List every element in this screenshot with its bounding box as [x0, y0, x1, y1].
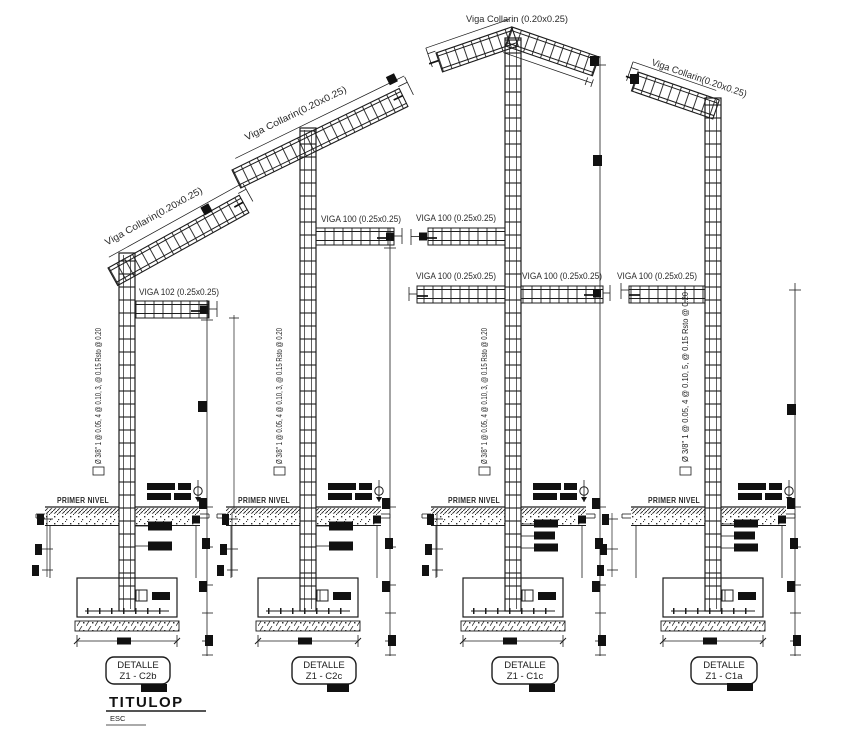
beam-label: VIGA 100 (0.25x0.25): [522, 271, 602, 281]
beam-label: VIGA 100 (0.25x0.25): [416, 271, 496, 281]
stirrup-note-text: Ø 3/8" 1 @ 0.05, 4 @ 0.10, 3, @ 0.15 Rst…: [479, 328, 489, 464]
detail-title: DETALLE: [504, 660, 546, 671]
anchor-mark: [630, 74, 639, 84]
collar-beam-label: Viga Collarin (0.20x0.25): [466, 14, 568, 25]
detail-code: Z1 - C1a: [706, 671, 744, 682]
anchor-mark: [590, 56, 599, 66]
detail-title-box: DETALLE Z1 - C2b: [106, 657, 170, 692]
stirrup-note-text: Ø 3/8" 1 @ 0.05, 4 @ 0.10, 5, @ 0.15 Rst…: [680, 292, 690, 462]
collar-beam: Viga Collarin(0.20x0.25): [622, 51, 748, 127]
floor-slab-left: [422, 507, 505, 526]
detail-z1-c1c: Viga Collarin (0.20x0.25): [409, 14, 610, 692]
floor-slab-left: [36, 507, 119, 526]
beam-lower-left: VIGA 100 (0.25x0.25): [409, 271, 505, 303]
beam-viga-100: VIGA 100 (0.25x0.25): [617, 271, 705, 303]
stirrup-note-text: Ø 3/8" 1 @ 0.05, 4 @ 0.10, 3, @ 0.15 Rst…: [93, 328, 103, 464]
detail-code: Z1 - C1c: [507, 671, 544, 682]
column: [505, 38, 521, 611]
level-label: PRIMER NIVEL: [648, 496, 700, 505]
detail-code: Z1 - C2c: [306, 671, 343, 682]
rebar-callouts: [316, 522, 353, 551]
right-dimension-marks: [382, 498, 396, 655]
sheet-title: TITULOP: [109, 694, 184, 711]
detail-z1-c2c: Viga Collarin(0.20x0.25) VIGA 100 (0.25x…: [217, 59, 417, 692]
detail-title-box: DETALLE Z1 - C2c: [292, 657, 356, 692]
cad-drawing-canvas: Viga Collarin(0.20x0.25) VIGA 102 (0.25x…: [0, 0, 849, 735]
right-dimension-marks: [787, 498, 801, 655]
stirrup-note: Ø 3/8" 1 @ 0.05, 4 @ 0.10, 3, @ 0.15 Rst…: [479, 328, 489, 464]
stirrup-note: Ø 3/8" 1 @ 0.05, 4 @ 0.10, 5, @ 0.15 Rst…: [680, 292, 690, 462]
detail-z1-c2b: Viga Collarin(0.20x0.25) VIGA 102 (0.25x…: [32, 166, 257, 692]
tie-symbol: [479, 467, 490, 475]
tie-symbol: [680, 467, 691, 475]
structural-detail-sheet: Viga Collarin(0.20x0.25) VIGA 102 (0.25x…: [0, 0, 849, 735]
beam-upper-left: VIGA 100 (0.25x0.25): [411, 213, 505, 245]
tie-symbol: [93, 467, 104, 475]
bar-schedule: [328, 480, 383, 502]
anchor-mark: [386, 73, 398, 85]
beam-label: VIGA 100 (0.25x0.25): [416, 213, 496, 223]
beam-label: VIGA 100 (0.25x0.25): [617, 271, 697, 281]
detail-title-box: DETALLE Z1 - C1a: [691, 657, 757, 691]
detail-code: Z1 - C2b: [120, 671, 157, 682]
beam-lower-right: VIGA 100 (0.25x0.25): [521, 271, 610, 303]
tie-symbol: [274, 467, 285, 475]
column: [300, 128, 316, 611]
floor-slab-left: [217, 507, 300, 526]
bar-schedule: [533, 480, 588, 502]
collar-beam-left-wing: [424, 19, 518, 75]
right-dimension-marks: [199, 498, 213, 655]
stirrup-note-text: Ø 3/8" 1 @ 0.05, 4 @ 0.10, 3, @ 0.15 Rst…: [274, 328, 284, 464]
beam-label: VIGA 102 (0.25x0.25): [139, 287, 219, 297]
column: [119, 253, 135, 611]
detail-title: DETALLE: [703, 660, 745, 671]
level-label: PRIMER NIVEL: [448, 496, 500, 505]
rebar-callouts: [135, 522, 172, 551]
rebar-callouts: [521, 520, 558, 552]
beam-label: VIGA 100 (0.25x0.25): [321, 214, 401, 224]
collar-beam: Viga Collarin(0.20x0.25): [220, 59, 417, 188]
stirrup-note: Ø 3/8" 1 @ 0.05, 4 @ 0.10, 3, @ 0.15 Rst…: [274, 328, 284, 464]
column: [705, 98, 721, 611]
level-label: PRIMER NIVEL: [57, 496, 109, 505]
detail-title-box: DETALLE Z1 - C1c: [492, 657, 558, 692]
bar-schedule: [738, 480, 793, 502]
rebar-callouts: [721, 520, 758, 552]
scale-label: ESC: [110, 714, 126, 723]
detail-title: DETALLE: [117, 660, 159, 671]
detail-title: DETALLE: [303, 660, 345, 671]
floor-slab-left: [622, 507, 705, 526]
bar-schedule: [147, 480, 202, 502]
stirrup-note: Ø 3/8" 1 @ 0.05, 4 @ 0.10, 3, @ 0.15 Rst…: [93, 328, 103, 464]
level-label: PRIMER NIVEL: [238, 496, 290, 505]
sheet-footer: TITULOP ESC: [106, 694, 206, 725]
beam-viga-100: VIGA 100 (0.25x0.25): [316, 214, 402, 245]
anchor-mark: [419, 233, 427, 241]
detail-z1-c1a: Viga Collarin(0.20x0.25) VIGA 100 (0.25x…: [597, 51, 801, 691]
beam-viga-102: VIGA 102 (0.25x0.25): [135, 287, 219, 318]
